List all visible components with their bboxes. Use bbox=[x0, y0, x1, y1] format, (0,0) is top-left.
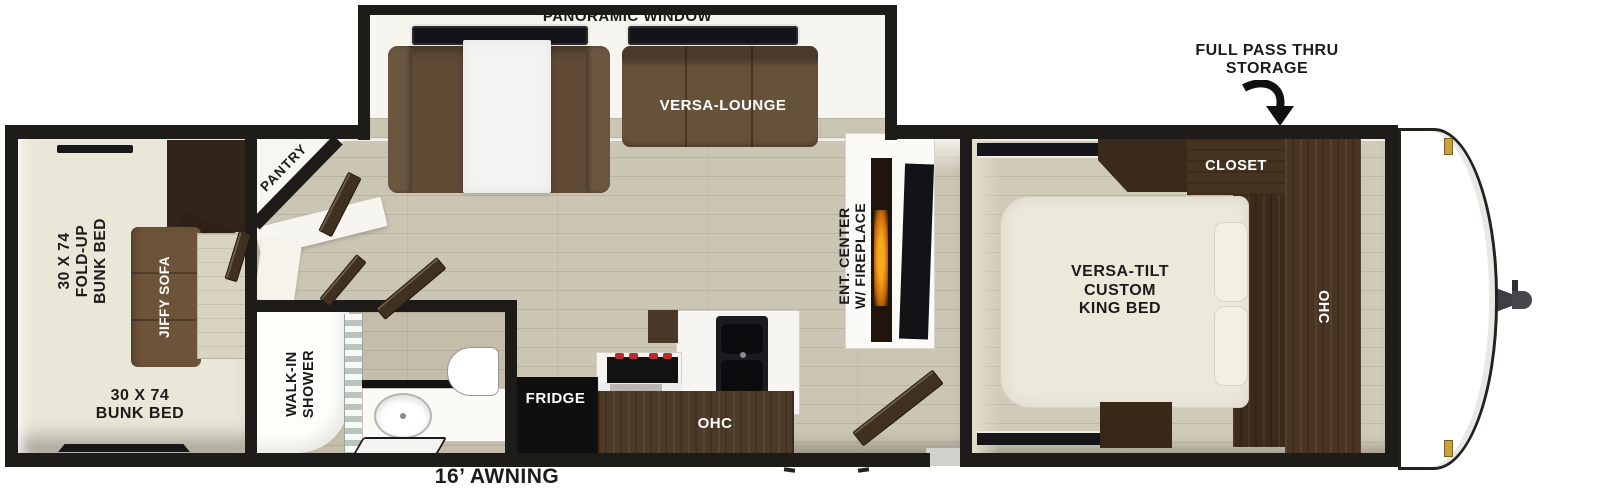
bedroom-nightstand bbox=[1100, 402, 1172, 448]
fold-up-bunk-label: 30 X 74 FOLD-UP BUNK BED bbox=[48, 186, 118, 336]
bunk-window-top bbox=[57, 145, 133, 153]
full-pass-thru-storage-label: FULL PASS THRU STORAGE bbox=[1167, 40, 1367, 80]
kitchen-tray bbox=[610, 384, 662, 391]
wall-bedroom-divider bbox=[960, 125, 972, 467]
pantry-shelf-side bbox=[254, 238, 302, 305]
sink-bowl-lower bbox=[721, 360, 763, 392]
kitchen-sink bbox=[716, 316, 768, 400]
versa-lounge-label: VERSA-LOUNGE bbox=[630, 96, 816, 116]
walk-in-shower-label: WALK-IN SHOWER bbox=[281, 317, 321, 451]
panoramic-window-right bbox=[628, 26, 798, 45]
hitch-coupler bbox=[1512, 291, 1532, 309]
awning-label: 16’ AWNING bbox=[417, 464, 577, 490]
clearance-light-bottom bbox=[1444, 440, 1453, 457]
bunk-window-bottom bbox=[58, 444, 190, 452]
king-bed-label: VERSA-TILT CUSTOM KING BED bbox=[1020, 258, 1220, 324]
bed-blanket bbox=[463, 40, 551, 193]
wall-bunk-divider bbox=[245, 125, 257, 467]
wall-bottom-right bbox=[963, 453, 1398, 467]
bunk-cabinet bbox=[167, 140, 245, 232]
sofa-right-arm bbox=[586, 46, 610, 193]
fridge-label: FRIDGE bbox=[513, 388, 598, 410]
fireplace-flame bbox=[874, 210, 888, 306]
panoramic-window-label: PANORAMIC WINDOW bbox=[358, 8, 897, 26]
vanity-backsplash bbox=[362, 380, 462, 388]
tv-panel bbox=[899, 164, 934, 340]
sink-bowl-upper bbox=[721, 324, 763, 354]
rv-floorplan: PANORAMIC WINDOW VERSA-LOUNGE ENT. CENTE… bbox=[0, 0, 1600, 495]
storage-arrow-icon bbox=[1238, 80, 1296, 128]
front-cap bbox=[1398, 128, 1498, 470]
toilet bbox=[447, 347, 499, 396]
closet-label: CLOSET bbox=[1187, 155, 1285, 177]
sink-drain bbox=[400, 413, 406, 419]
clearance-light-top bbox=[1444, 138, 1453, 155]
ent-center-label: ENT. CENTER W/ FIREPLACE bbox=[834, 166, 870, 346]
murphy-bed-sofa bbox=[388, 46, 610, 193]
shower-glass-door bbox=[344, 314, 363, 453]
jiffy-sofa-label: JIFFY SOFA bbox=[156, 232, 174, 362]
bedroom-ohc-label: OHC bbox=[1313, 272, 1333, 342]
stove-knob-3 bbox=[649, 353, 658, 359]
kitchen-ohc-label: OHC bbox=[660, 414, 770, 434]
stove-knob-2 bbox=[629, 353, 638, 359]
bunk-bed-label: 30 X 74 BUNK BED bbox=[60, 384, 220, 426]
wall-bathroom-right bbox=[505, 300, 517, 465]
awning-mount-dash-1 bbox=[784, 467, 795, 472]
stove-knob-1 bbox=[615, 353, 624, 359]
stove-knob-4 bbox=[663, 353, 672, 359]
wall-rear-left bbox=[5, 125, 18, 467]
bedroom-wall-shading bbox=[972, 139, 1000, 453]
wall-front-right bbox=[1385, 125, 1398, 467]
awning-mount-dash-2 bbox=[858, 467, 869, 472]
counter-corner-cabinet bbox=[648, 310, 678, 343]
vanity-sink bbox=[374, 393, 432, 439]
sink-faucet bbox=[740, 352, 746, 358]
fireplace bbox=[871, 158, 892, 342]
sofa-left-arm bbox=[388, 46, 412, 193]
